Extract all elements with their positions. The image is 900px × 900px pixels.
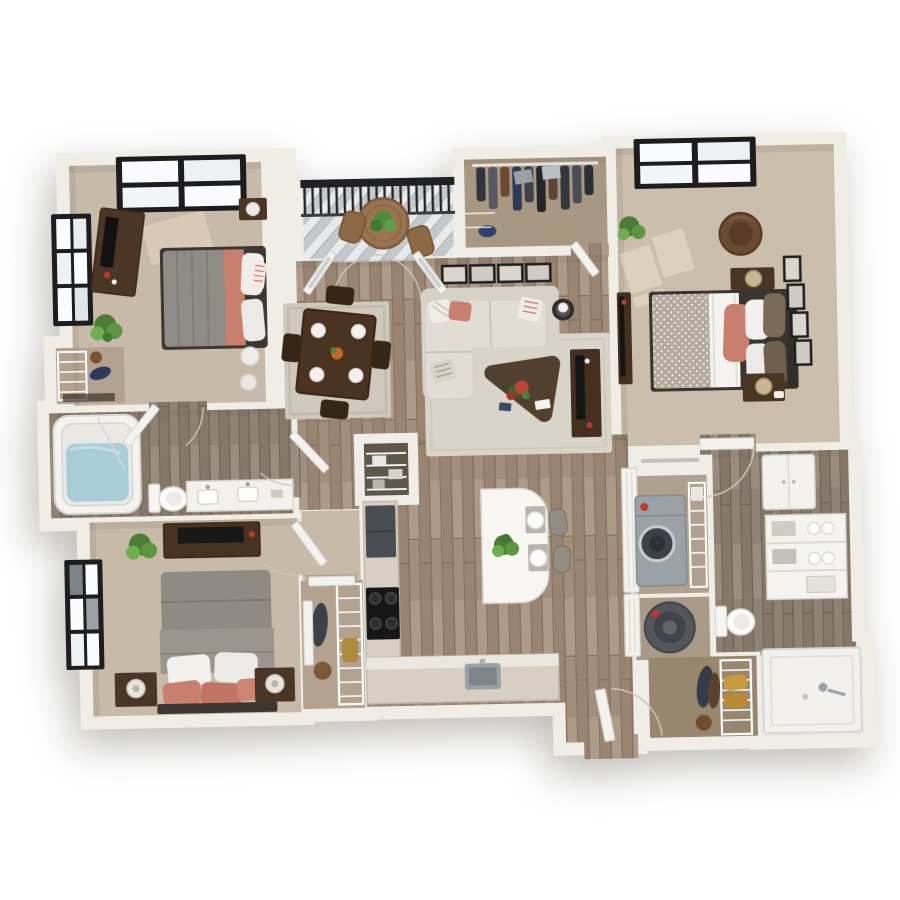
dotted-duvet	[652, 293, 716, 388]
side-window	[51, 213, 93, 326]
place-setting	[351, 324, 366, 339]
chair	[325, 285, 355, 306]
nightstand	[115, 672, 158, 707]
place-setting	[309, 367, 324, 382]
apartment-plan	[32, 131, 878, 770]
bed-1	[160, 246, 269, 350]
island	[481, 488, 549, 603]
hall-floor	[297, 417, 359, 510]
dresser-tv	[163, 522, 260, 558]
tv	[178, 526, 244, 543]
picture-window	[116, 154, 247, 213]
nightstand	[730, 267, 774, 290]
stool	[241, 347, 259, 365]
wall-cabinet	[762, 454, 815, 509]
box	[373, 479, 385, 488]
stool	[552, 545, 571, 573]
closet-door	[303, 601, 313, 665]
rolled-towel	[822, 522, 834, 534]
box	[372, 455, 386, 465]
counter-run-south	[366, 654, 559, 704]
place-setting	[311, 323, 326, 338]
sink	[238, 487, 258, 501]
gold-towel	[724, 692, 748, 709]
floor-plan-render	[0, 0, 900, 900]
plate	[530, 549, 547, 566]
basket	[772, 521, 796, 536]
tv-dresser	[91, 208, 145, 297]
nightstand	[742, 373, 785, 402]
woven-lamp	[756, 378, 772, 394]
plate	[527, 512, 544, 529]
vestibule-closet-door	[309, 576, 355, 586]
supplies	[691, 487, 703, 501]
sink	[198, 490, 218, 504]
linen-shelving	[765, 514, 847, 600]
utility-closet	[644, 602, 695, 653]
pillow	[240, 298, 266, 342]
round-chair	[719, 212, 762, 255]
rolled-towel	[808, 552, 820, 564]
floor-plan-svg	[0, 0, 900, 900]
woven-lamp	[745, 270, 761, 286]
pantry	[354, 433, 419, 506]
basket	[772, 549, 796, 564]
lamp	[246, 202, 259, 215]
coral-pillow	[448, 301, 472, 322]
rolled-towel	[822, 552, 834, 564]
window	[634, 137, 757, 190]
place-setting	[348, 368, 363, 383]
storage-box	[542, 165, 561, 180]
tub	[53, 415, 141, 515]
counter-run-west	[363, 501, 400, 664]
gold-item	[342, 638, 358, 662]
rolled-towel	[808, 522, 820, 534]
gold-towel	[723, 674, 748, 692]
lattice-basket	[807, 576, 835, 593]
book	[499, 402, 512, 411]
taupe-pillow	[763, 293, 786, 337]
nightstand	[255, 667, 296, 702]
tv	[575, 355, 585, 419]
tray	[271, 490, 283, 498]
double-vanity	[187, 479, 294, 511]
range	[366, 587, 400, 640]
chair	[320, 399, 350, 420]
nightstand	[239, 198, 267, 221]
pouf	[240, 374, 256, 390]
box	[388, 469, 402, 479]
walk-in-shower	[762, 647, 862, 733]
window	[64, 559, 104, 670]
stool	[548, 508, 568, 537]
media-console	[570, 349, 602, 438]
tv-console	[617, 292, 633, 384]
